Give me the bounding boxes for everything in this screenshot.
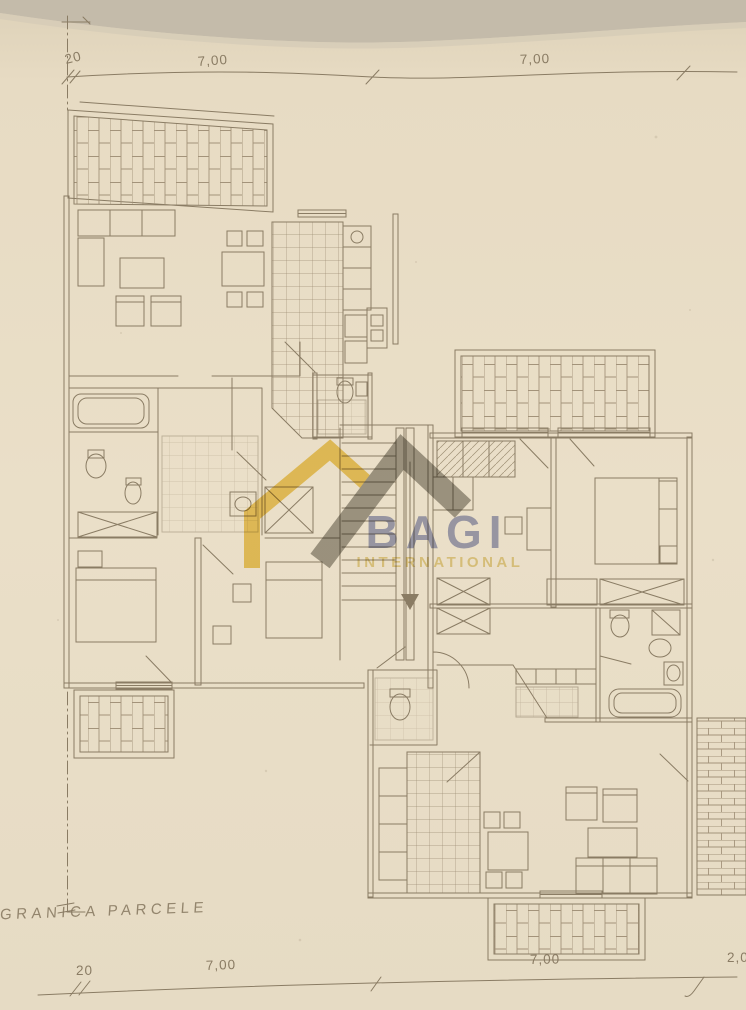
scanned-floor-plan-page: BAGI INTERNATIONAL 20 7,00 7,00 20 7,00 …	[0, 0, 746, 1010]
terrace-right-edge-hatch	[697, 718, 746, 895]
dim-bottom-offset: 20	[76, 963, 93, 978]
watermark-subtitle-text: INTERNATIONAL	[357, 554, 524, 571]
dim-top-span-1: 7,00	[197, 52, 228, 69]
dim-bottom-span-1: 7,00	[206, 957, 237, 973]
floor-plan-scan: BAGI INTERNATIONAL 20 7,00 7,00 20 7,00 …	[0, 0, 746, 1010]
wardrobe-icon	[437, 441, 515, 477]
watermark-brand-text: BAGI	[366, 506, 509, 558]
dim-top-span-2: 7,00	[520, 51, 551, 67]
balcony-right-top-hatch	[455, 350, 655, 437]
dim-bottom-span-2: 7,00	[530, 951, 561, 967]
dim-bottom-span-3: 2,0	[727, 950, 746, 965]
